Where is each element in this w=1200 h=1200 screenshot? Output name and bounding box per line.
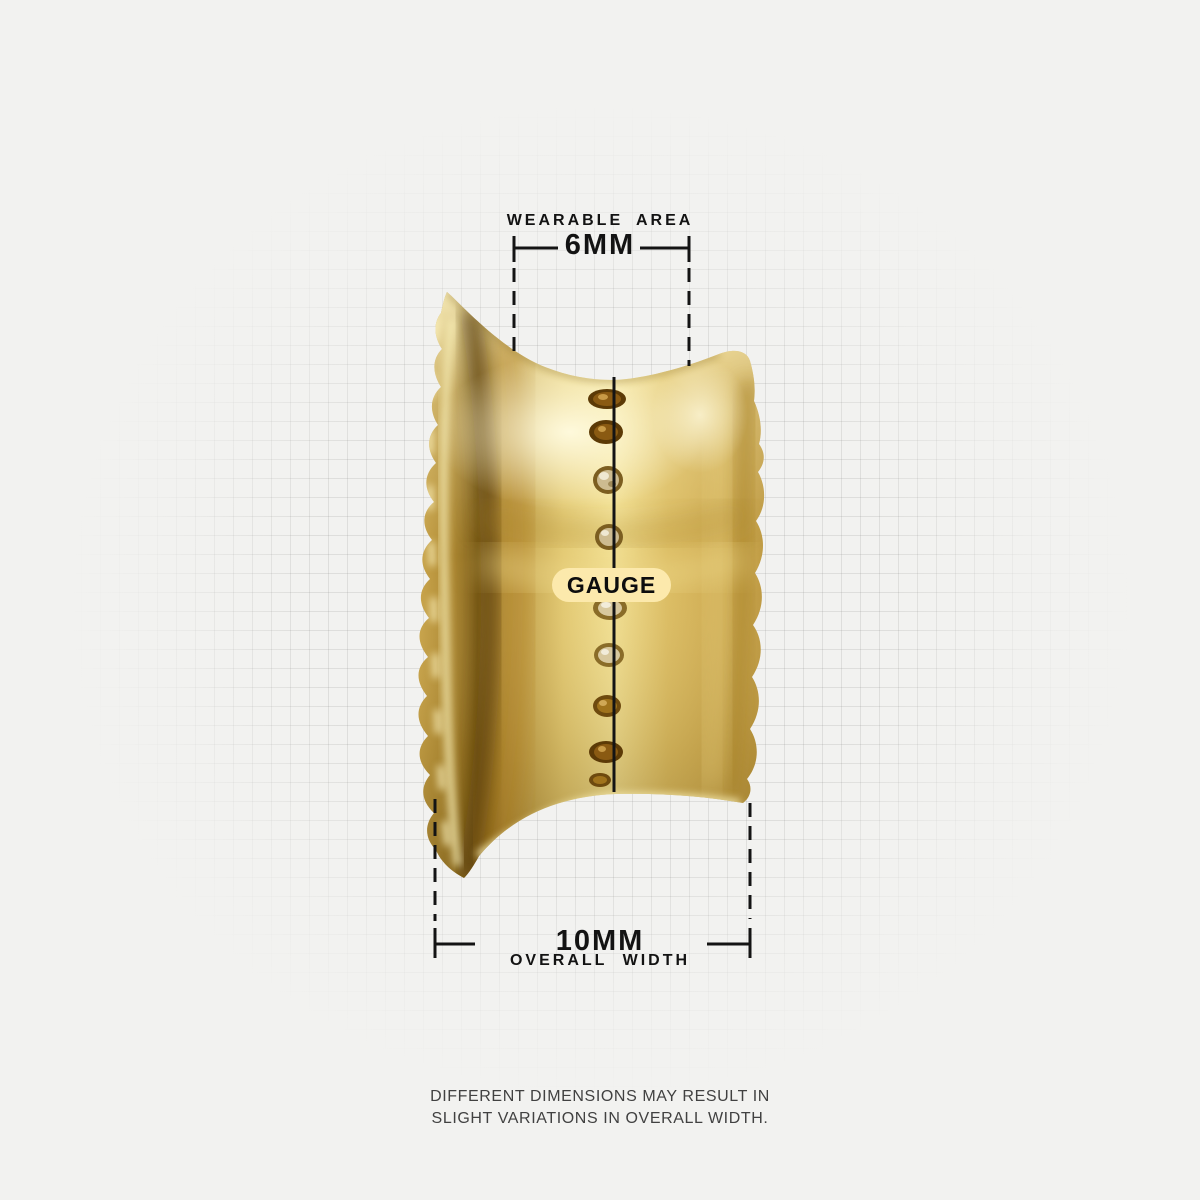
gauge-badge: GAUGE [552,568,671,602]
footnote-line-1: DIFFERENT DIMENSIONS MAY RESULT IN [0,1086,1200,1108]
footnote-line-2: SLIGHT VARIATIONS IN OVERALL WIDTH. [0,1108,1200,1130]
overall-width-label: OVERALL WIDTH [0,952,1200,970]
footnote: DIFFERENT DIMENSIONS MAY RESULT IN SLIGH… [0,1086,1200,1130]
wearable-area-label: WEARABLE AREA [0,212,1200,230]
gauge-label: GAUGE [567,572,656,599]
product-dimension-diagram: WEARABLE AREA 6MM GAUGE 10MM OVERALL WID… [0,0,1200,1200]
wearable-area-value: 6MM [0,229,1200,262]
